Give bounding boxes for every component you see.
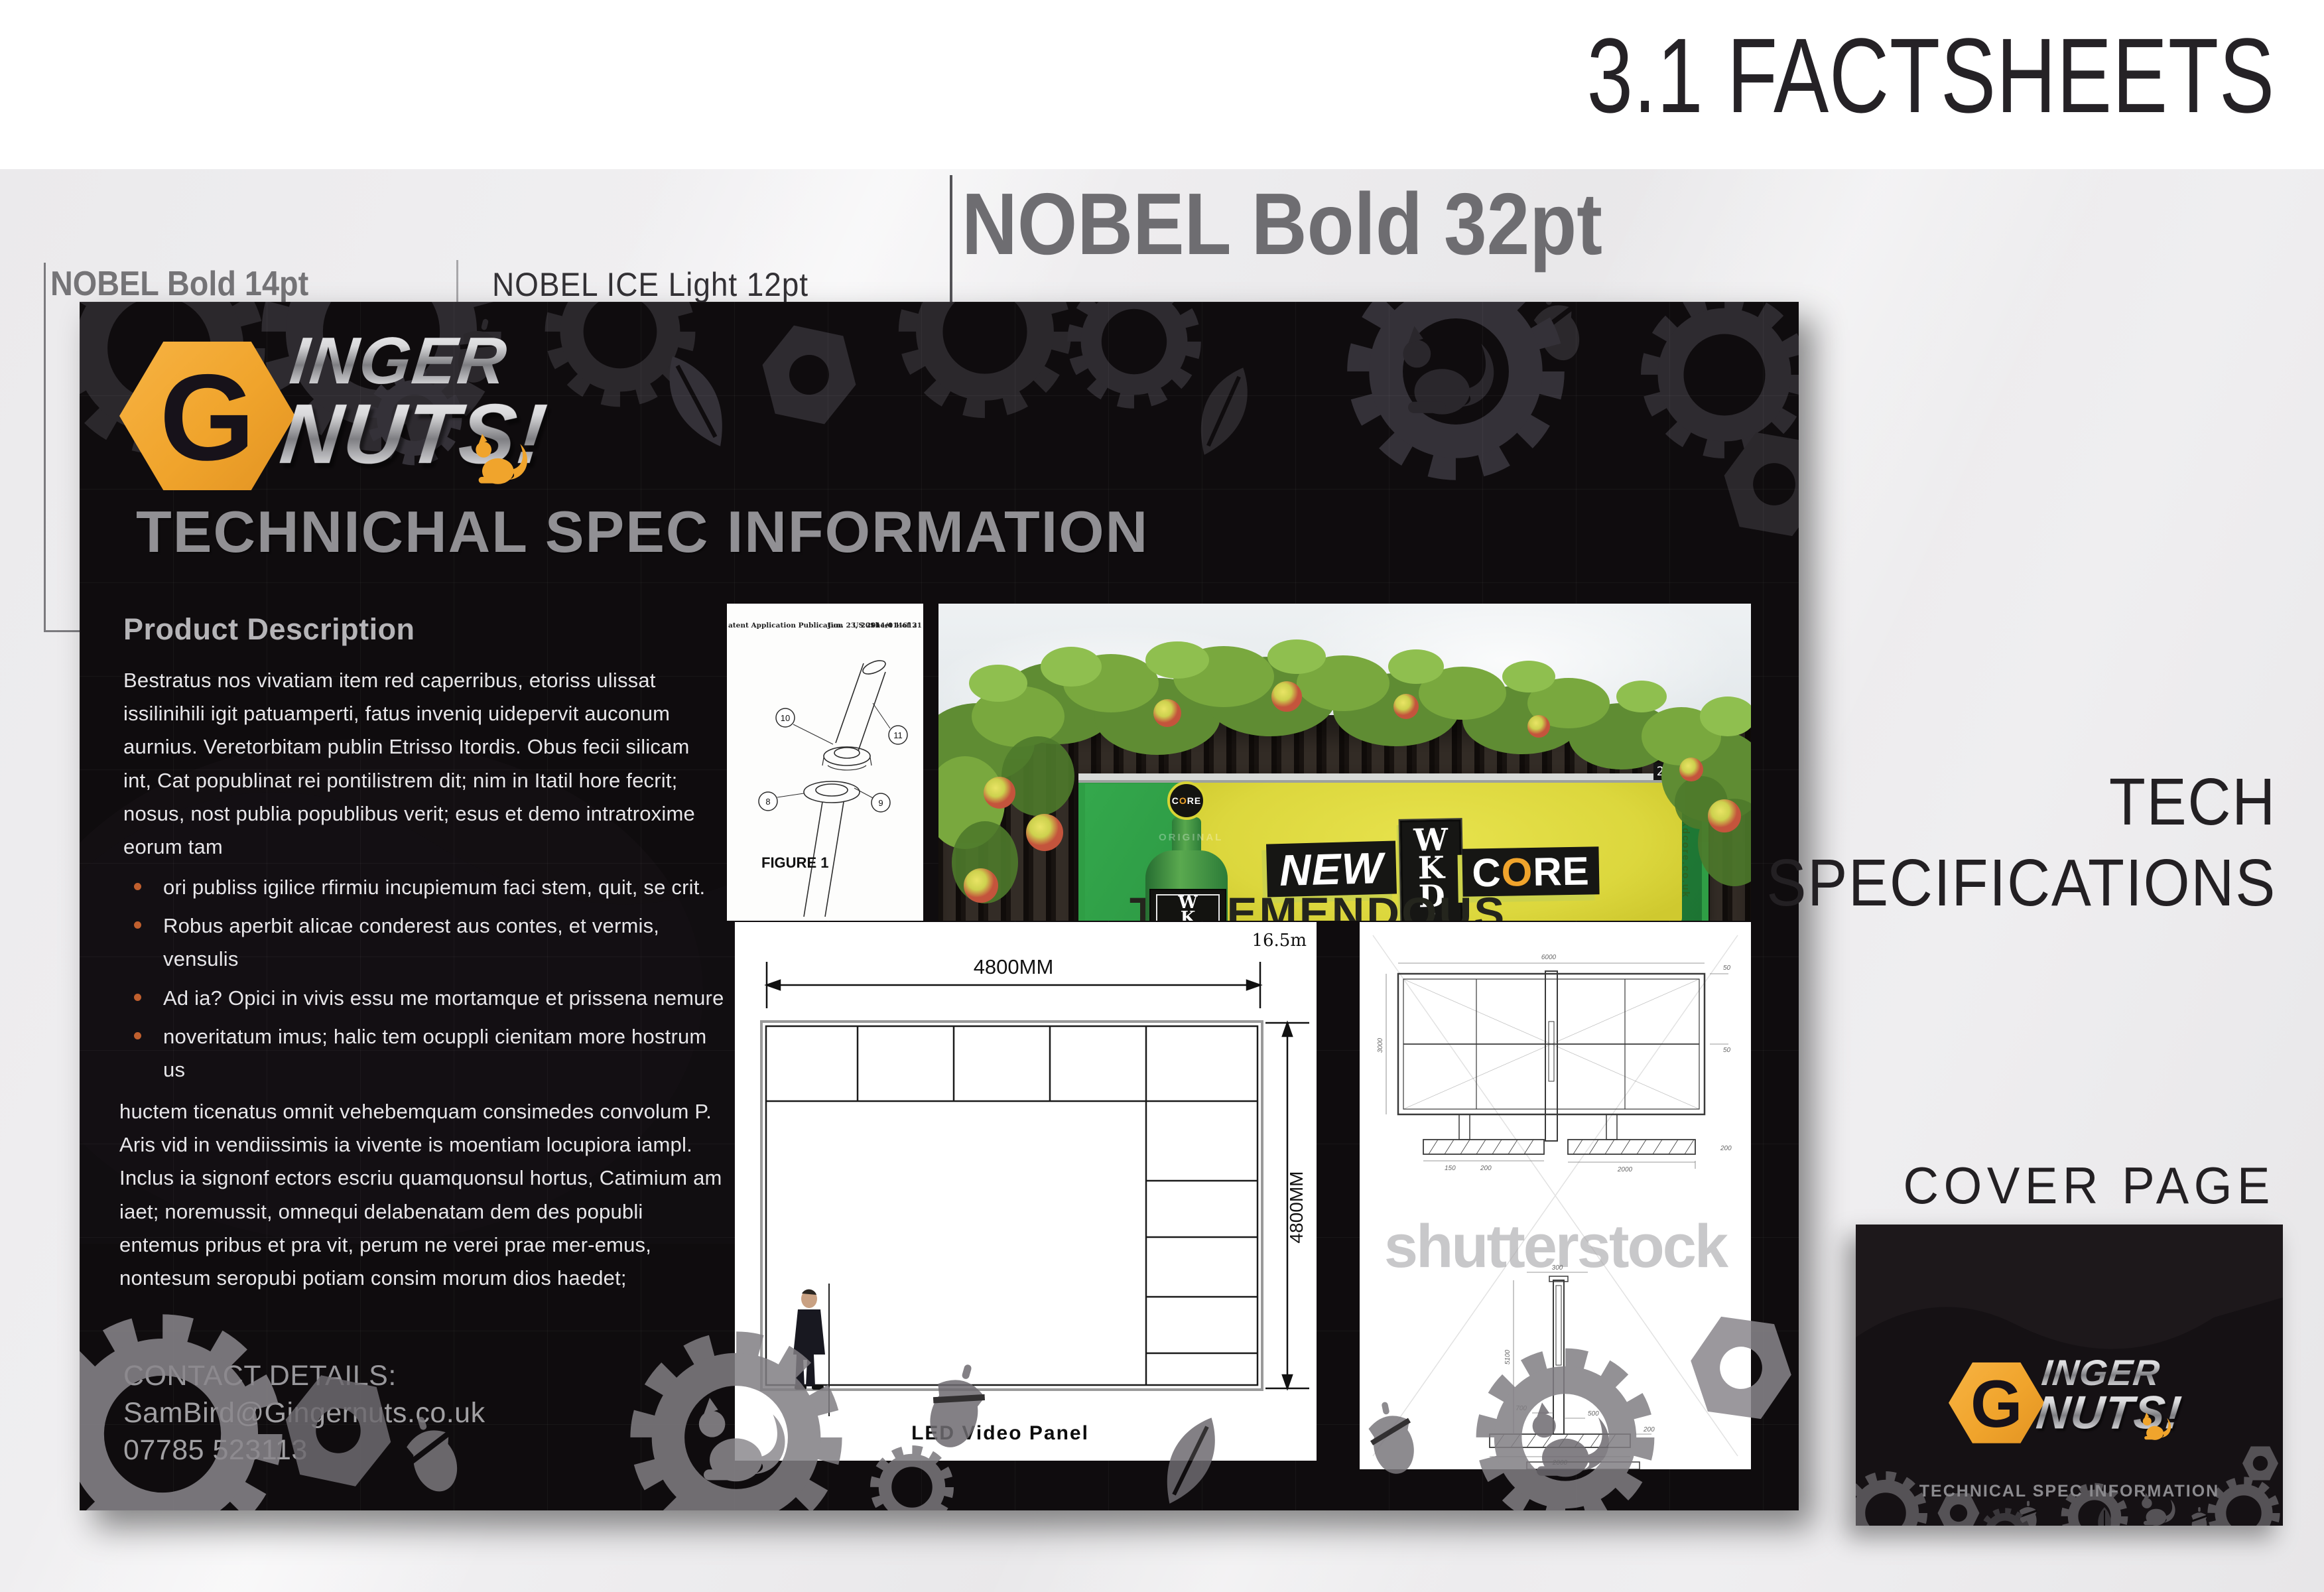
bottle-label-letters: W K (1156, 894, 1220, 921)
bullet-dot-icon (134, 883, 141, 890)
billboard-plate-number: 246704 (1653, 763, 1717, 780)
svg-text:16.5m: 16.5m (1252, 931, 1307, 951)
gingernuts-logo: G INGER NUTS! (119, 330, 557, 522)
svg-text:11: 11 (893, 730, 903, 740)
svg-text:2000: 2000 (1617, 1166, 1633, 1173)
svg-text:300: 300 (1552, 1264, 1563, 1272)
svg-text:9: 9 (878, 798, 883, 808)
paragraph-1: Bestratus nos vivatiam item red caperrib… (123, 664, 714, 864)
callout-line-bold14 (44, 263, 46, 631)
logo-g-letter: G (119, 342, 295, 490)
bullet-dot-icon (134, 994, 141, 1001)
svg-text:150: 150 (1445, 1165, 1456, 1172)
svg-text:50: 50 (1723, 964, 1731, 972)
poster-url: wkdcore.co.uk (1680, 812, 1691, 898)
svg-text:3000: 3000 (1377, 1037, 1384, 1053)
bullet-text: Ad ia? Opici in vivis essu me mortamque … (163, 986, 724, 1010)
bullet-text: ori publiss igilice rfirmiu incupiemum f… (163, 876, 705, 899)
bullet-text: noveritatum imus; halic tem ocuppli cien… (163, 1025, 706, 1081)
svg-text:4800MM: 4800MM (1286, 1171, 1307, 1244)
bullet-dot-icon (134, 1032, 141, 1039)
bullet-item: Robus aperbit alicae conderest aus conte… (123, 909, 727, 976)
annotation-nobel-bold-32: NOBEL Bold 32pt (962, 174, 1602, 274)
svg-text:6000: 6000 (1541, 954, 1557, 961)
section-title: Product Description (123, 612, 415, 647)
bottle-emboss-text: ORIGINAL (1159, 832, 1223, 843)
cover-logo: G INGER NUTS! (1949, 1356, 2187, 1461)
billboard-photo: wkdcore.co.uk 246704 NEW W K D ® CORE TR… (938, 604, 1751, 921)
svg-text:atent Application Publication: atent Application Publication (728, 622, 843, 630)
annotation-nobel-bold-14: NOBEL Bold 14pt (50, 264, 308, 304)
bullet-dot-icon (134, 921, 141, 929)
svg-text:FIGURE 1: FIGURE 1 (761, 854, 828, 871)
squirrel-icon (464, 424, 536, 496)
bullet-list: ori publiss igilice rfirmiu incupiemum f… (123, 871, 727, 1092)
svg-text:200: 200 (1480, 1165, 1492, 1172)
factsheet-page: 3.1 FACTSHEETS NOBEL Bold 14pt NOBEL ICE… (0, 0, 2324, 1592)
paragraph-2: huctem ticenatus omnit vehebemquam consi… (119, 1095, 723, 1295)
svg-text:US 2011/0146121: US 2011/0146121 (852, 622, 922, 630)
svg-text:8: 8 (765, 797, 770, 807)
svg-text:10: 10 (781, 713, 790, 723)
svg-text:200: 200 (1720, 1145, 1732, 1152)
bottle-core-badge: CORE (1167, 781, 1206, 820)
specifications-line: SPECIFICATIONS (1766, 842, 2276, 923)
factsheet-panel: G INGER NUTS! TECHNICHAL SPEC INFORMATIO… (80, 302, 1799, 1510)
annotation-nobel-ice-light-12: NOBEL ICE Light 12pt (492, 265, 808, 304)
bottle-label: W K (1149, 889, 1226, 921)
patent-figure-image: atent Application Publication Jun. 23, 2… (727, 604, 923, 921)
gear-pattern-bottom (80, 1272, 1799, 1510)
svg-text:4800MM: 4800MM (974, 955, 1054, 978)
bullet-text: Robus aperbit alicae conderest aus conte… (163, 914, 659, 970)
cover-subtitle: TECHNICAL SPEC INFORMATION (1856, 1482, 2283, 1501)
cover-page-label: COVER PAGE (1903, 1156, 2275, 1216)
tech-line: TECH (1766, 762, 2276, 842)
page-title: 3.1 FACTSHEETS (1587, 15, 2275, 137)
bullet-item: noveritatum imus; halic tem ocuppli cien… (123, 1020, 727, 1087)
factsheet-heading: TECHNICHAL SPEC INFORMATION (136, 498, 1149, 566)
cover-squirrel-icon (2136, 1407, 2175, 1446)
cover-page-thumbnail: G INGER NUTS! TECHNICAL SPEC INFORMATION (1856, 1225, 2283, 1526)
svg-text:50: 50 (1723, 1047, 1731, 1054)
tech-specifications-heading: TECH SPECIFICATIONS (1766, 762, 2276, 923)
bullet-item: ori publiss igilice rfirmiu incupiemum f… (123, 871, 727, 904)
bullet-item: Ad ia? Opici in vivis essu me mortamque … (123, 982, 727, 1015)
